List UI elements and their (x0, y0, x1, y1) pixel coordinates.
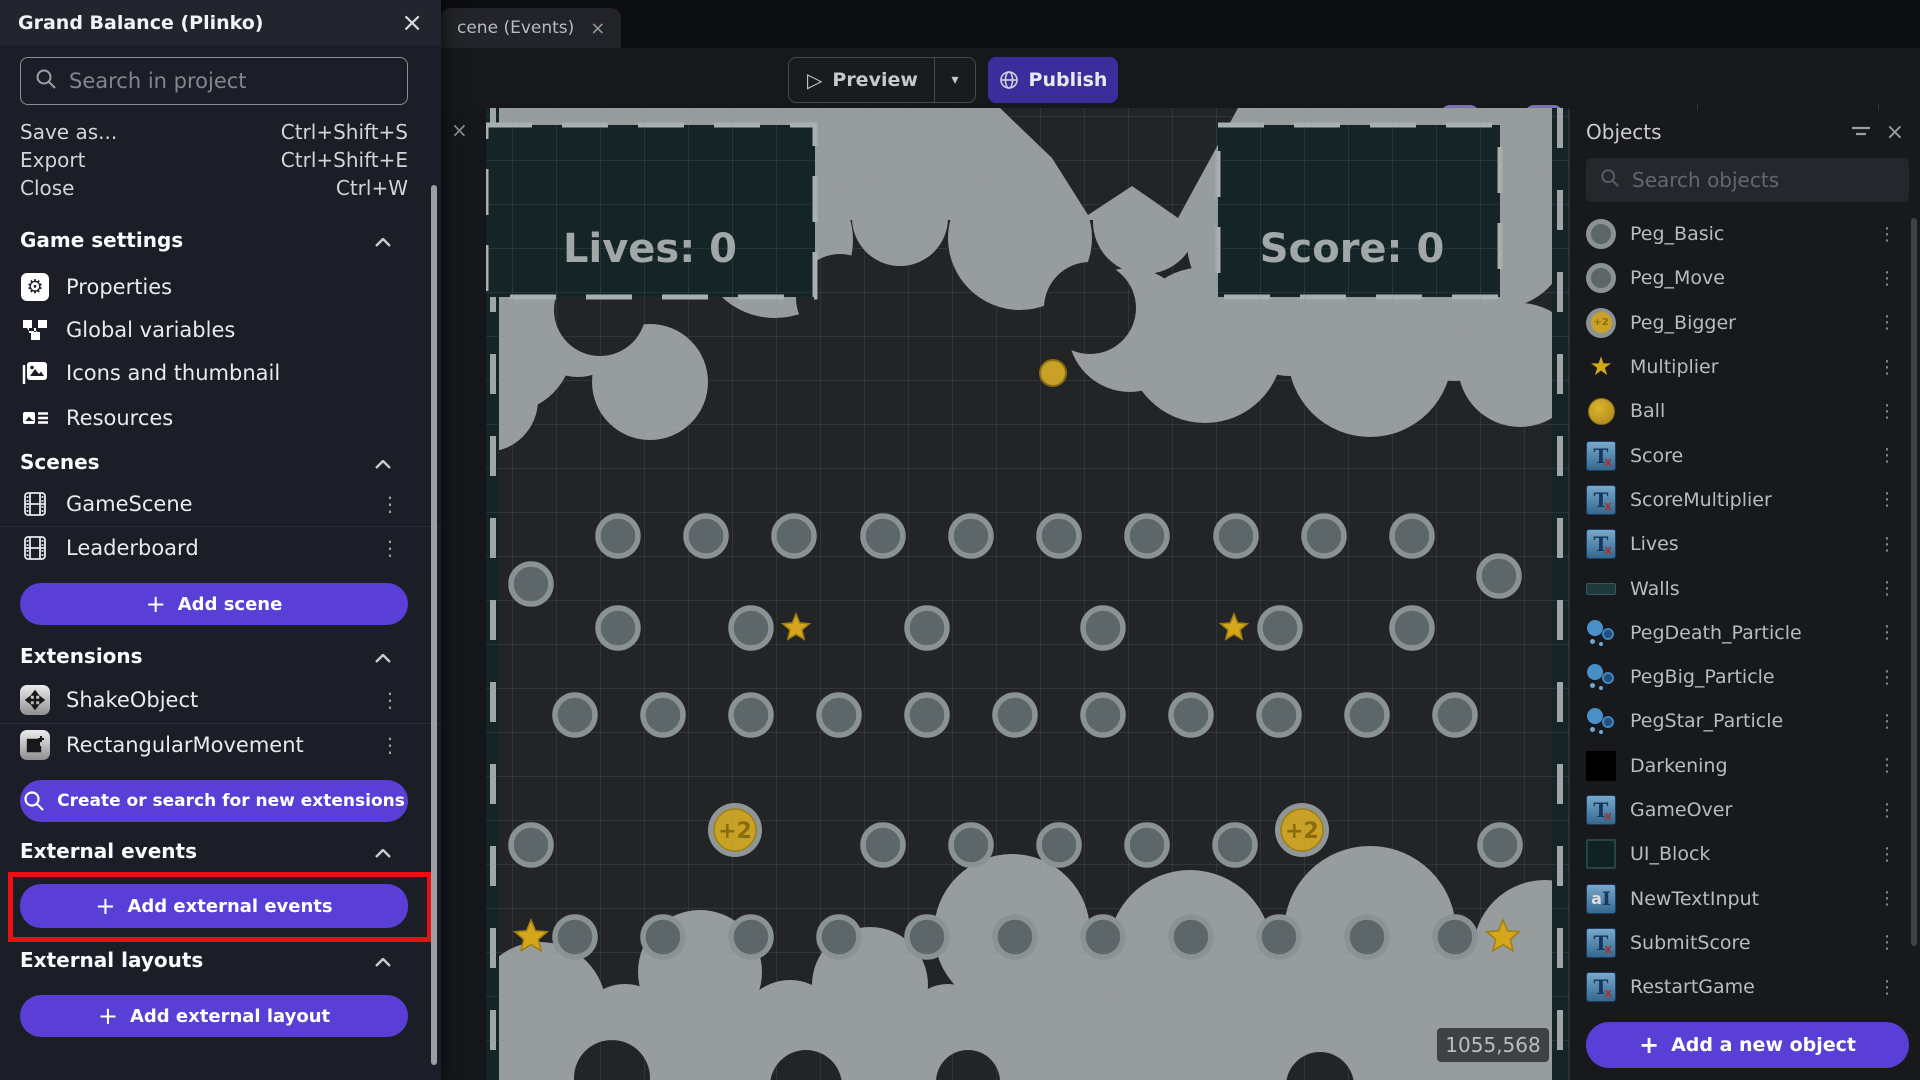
peg[interactable] (1435, 695, 1475, 735)
peg[interactable] (598, 608, 638, 648)
object-name: GameOver (1630, 799, 1864, 821)
text-icon: Tx (1586, 441, 1616, 471)
object-menu-icon[interactable]: ⋮ (1878, 489, 1896, 510)
peg[interactable] (1127, 516, 1167, 556)
coin-icon: +2 (1586, 308, 1616, 338)
object-menu-icon[interactable]: ⋮ (1878, 224, 1896, 245)
cursor-coordinates-badge: 1055,568 (1437, 1028, 1549, 1062)
panel-title: Objects (1586, 120, 1836, 144)
peg[interactable] (1259, 695, 1299, 735)
menu-label: Save as... (20, 120, 117, 144)
menu-shortcut: Ctrl+Shift+E (281, 148, 408, 172)
scrollbar[interactable] (431, 185, 437, 1065)
object-name: UI_Block (1630, 843, 1864, 865)
shake-extension-icon (20, 685, 50, 715)
item-label: GameScene (66, 492, 193, 516)
peg[interactable] (555, 917, 595, 957)
section-title: Extensions (20, 644, 143, 668)
peg[interactable] (951, 825, 991, 865)
object-row[interactable]: Peg_Basic⋮ (1570, 212, 1910, 256)
peg[interactable] (555, 695, 595, 735)
peg-icon (1586, 263, 1616, 293)
search-objects-input[interactable]: Search objects (1586, 158, 1909, 202)
object-menu-icon[interactable]: ⋮ (1878, 445, 1896, 466)
object-row[interactable]: +2Peg_Bigger⋮ (1570, 301, 1910, 345)
object-name: Lives (1630, 533, 1864, 555)
score-text[interactable]: Score: 0 (1260, 226, 1445, 272)
sidebar-item-shakeobject[interactable]: ShakeObject ⋮ (20, 680, 408, 720)
row-menu-icon[interactable]: ⋮ (380, 733, 408, 757)
peg[interactable] (1479, 556, 1519, 596)
object-row[interactable]: PegDeath_Particle⋮ (1570, 611, 1910, 655)
peg[interactable] (1392, 608, 1432, 648)
object-name: SubmitScore (1630, 932, 1864, 954)
object-menu-icon[interactable]: ⋮ (1878, 888, 1896, 909)
peg[interactable] (863, 516, 903, 556)
object-row[interactable]: Walls⋮ (1570, 566, 1910, 610)
object-row[interactable]: UI_Block⋮ (1570, 832, 1910, 876)
peg[interactable] (598, 516, 638, 556)
sidebar-item-resources[interactable]: Resources (20, 398, 408, 438)
add-external-events-button[interactable]: + Add external events (20, 884, 408, 928)
wall-icon (1586, 574, 1616, 604)
object-name: NewTextInput (1630, 888, 1864, 910)
peg[interactable] (1260, 608, 1300, 648)
search-icon (35, 68, 57, 94)
menu-label: Close (20, 176, 74, 200)
object-row[interactable]: Darkening⋮ (1570, 744, 1910, 788)
item-label: Resources (66, 406, 173, 430)
object-row[interactable]: PegStar_Particle⋮ (1570, 699, 1910, 743)
sidebar-item-icons-thumbnail[interactable]: Icons and thumbnail (20, 353, 408, 393)
divider (0, 723, 441, 724)
ball[interactable] (1040, 360, 1066, 386)
button-label: Add external events (127, 896, 332, 917)
peg[interactable] (907, 608, 947, 648)
search-placeholder: Search objects (1632, 168, 1779, 192)
scene-icon (20, 489, 50, 519)
object-row[interactable]: TxScore⋮ (1570, 433, 1910, 477)
particle-icon (1586, 618, 1616, 648)
object-menu-icon[interactable]: ⋮ (1878, 667, 1896, 688)
peg[interactable] (643, 695, 683, 735)
peg[interactable] (863, 825, 903, 865)
object-name: Multiplier (1630, 356, 1864, 378)
search-icon (1600, 168, 1620, 192)
object-name: PegDeath_Particle (1630, 622, 1864, 644)
row-menu-icon[interactable]: ⋮ (380, 536, 408, 560)
add-scene-button[interactable]: + Add scene (20, 583, 408, 625)
menu-item-save-as[interactable]: Save as... Ctrl+Shift+S (20, 118, 408, 146)
object-name: Peg_Move (1630, 267, 1864, 289)
peg[interactable] (907, 695, 947, 735)
chevron-up-icon (375, 839, 391, 863)
publish-label: Publish (1029, 69, 1108, 91)
object-name: ScoreMultiplier (1630, 489, 1864, 511)
coin-label: +2 (718, 819, 752, 844)
peg[interactable] (819, 695, 859, 735)
peg[interactable] (1304, 516, 1344, 556)
sidebar-item-rectangularmovement[interactable]: RectangularMovement ⋮ (20, 725, 408, 765)
peg[interactable] (511, 825, 551, 865)
peg[interactable] (1171, 917, 1211, 957)
project-manager-header: Grand Balance (Plinko) × (0, 0, 441, 45)
menu-item-close[interactable]: Close Ctrl+W (20, 174, 408, 202)
button-label: Create or search for new extensions (57, 791, 405, 811)
play-icon: ▷ (807, 68, 822, 92)
object-row[interactable]: PegBig_Particle⋮ (1570, 655, 1910, 699)
peg[interactable] (1171, 695, 1211, 735)
peg[interactable] (1215, 825, 1255, 865)
object-menu-icon[interactable]: ⋮ (1878, 932, 1896, 953)
object-menu-icon[interactable]: ⋮ (1878, 622, 1896, 643)
close-icon[interactable]: × (1886, 120, 1904, 145)
scene-canvas[interactable]: 25% (486, 108, 1569, 1080)
button-label: Add a new object (1671, 1034, 1856, 1056)
peg[interactable] (819, 917, 859, 957)
black-icon (1586, 751, 1616, 781)
sidebar-item-gamescene[interactable]: GameScene ⋮ (20, 484, 408, 524)
object-name: Peg_Basic (1630, 223, 1864, 245)
object-row[interactable]: Peg_Move⋮ (1570, 256, 1910, 300)
particle-icon (1586, 662, 1616, 692)
peg[interactable] (1039, 516, 1079, 556)
panel-close-icon[interactable]: × (451, 118, 468, 142)
text-icon: Tx (1586, 485, 1616, 515)
close-icon[interactable]: × (401, 10, 423, 36)
add-new-object-button[interactable]: + Add a new object (1586, 1022, 1909, 1068)
peg-icon (1586, 219, 1616, 249)
peg[interactable] (1083, 917, 1123, 957)
chevron-down-icon[interactable]: ▾ (935, 72, 975, 88)
chevron-up-icon (375, 948, 391, 972)
peg[interactable] (1347, 695, 1387, 735)
search-input[interactable]: Search in project (20, 57, 408, 105)
publish-button[interactable]: Publish (988, 57, 1118, 103)
peg-bigger-coin[interactable]: +2 (1275, 803, 1329, 857)
section-external-layouts[interactable]: External layouts (20, 948, 421, 972)
filter-icon[interactable] (1850, 123, 1872, 142)
section-extensions[interactable]: Extensions (20, 644, 421, 668)
peg[interactable] (1259, 917, 1299, 957)
object-name: PegStar_Particle (1630, 710, 1864, 732)
peg[interactable] (995, 695, 1035, 735)
lives-text[interactable]: Lives: 0 (563, 226, 737, 272)
plus-icon: + (146, 590, 166, 618)
add-external-layout-button[interactable]: + Add external layout (20, 995, 408, 1037)
item-label: Leaderboard (66, 536, 199, 560)
scrollbar[interactable] (1911, 218, 1917, 946)
text-icon: Tx (1586, 529, 1616, 559)
section-title: Scenes (20, 450, 100, 474)
input-icon: aI (1586, 884, 1616, 914)
peg[interactable] (1347, 917, 1387, 957)
plus-icon: + (1639, 1031, 1659, 1059)
object-menu-icon[interactable]: ⋮ (1878, 800, 1896, 821)
variables-tree-icon (20, 315, 50, 345)
coin-label: +2 (1285, 819, 1319, 844)
object-name: RestartGame (1630, 976, 1864, 998)
search-icon (23, 790, 45, 812)
item-label: Properties (66, 275, 172, 299)
object-name: Darkening (1630, 755, 1864, 777)
peg[interactable] (774, 516, 814, 556)
sidebar-item-global-variables[interactable]: Global variables (20, 310, 408, 350)
image-icon (20, 358, 50, 388)
peg[interactable] (686, 516, 726, 556)
peg[interactable] (1480, 825, 1520, 865)
section-title: External events (20, 839, 197, 863)
peg[interactable] (731, 608, 771, 648)
object-name: Score (1630, 445, 1864, 467)
gear-icon: ⚙ (20, 272, 50, 302)
peg[interactable] (1083, 695, 1123, 735)
peg[interactable] (1127, 825, 1167, 865)
project-manager-panel: Grand Balance (Plinko) × Search in proje… (0, 0, 441, 1080)
object-name: Peg_Bigger (1630, 312, 1864, 334)
object-menu-icon[interactable]: ⋮ (1878, 534, 1896, 555)
peg[interactable] (951, 516, 991, 556)
menu-shortcut: Ctrl+W (336, 176, 408, 200)
objects-panel-header: Objects × (1570, 110, 1920, 154)
object-row[interactable]: aINewTextInput⋮ (1570, 876, 1910, 920)
scene-icon (20, 533, 50, 563)
collapsed-panel-strip: × (441, 110, 486, 1080)
star-icon: ★ (1586, 352, 1616, 382)
peg[interactable] (511, 564, 551, 604)
object-row[interactable]: TxSubmitScore⋮ (1570, 921, 1910, 965)
plus-icon: + (95, 892, 115, 920)
menu-shortcut: Ctrl+Shift+S (281, 120, 408, 144)
object-row[interactable]: TxGameOver⋮ (1570, 788, 1910, 832)
peg[interactable] (1216, 516, 1256, 556)
resources-icon (20, 403, 50, 433)
section-title: Game settings (20, 228, 183, 252)
object-menu-icon[interactable]: ⋮ (1878, 977, 1896, 998)
peg[interactable] (643, 917, 683, 957)
object-row[interactable]: TxLives⋮ (1570, 522, 1910, 566)
object-row[interactable]: Ball⋮ (1570, 389, 1910, 433)
object-menu-icon[interactable]: ⋮ (1878, 578, 1896, 599)
peg[interactable] (1083, 608, 1123, 648)
button-label: Add scene (178, 594, 283, 615)
ball-icon (1586, 396, 1616, 426)
chevron-up-icon (375, 450, 391, 474)
objects-panel: Objects × Search objects Peg_Basic⋮Peg_M… (1569, 110, 1920, 1080)
peg[interactable] (995, 917, 1035, 957)
peg[interactable] (1392, 516, 1432, 556)
section-title: External layouts (20, 948, 203, 972)
object-name: Walls (1630, 578, 1864, 600)
text-icon: Tx (1586, 795, 1616, 825)
peg-bigger-coin[interactable]: +2 (708, 803, 762, 857)
preview-button[interactable]: ▷ Preview ▾ (788, 57, 976, 103)
item-label: Global variables (66, 318, 235, 342)
object-row[interactable]: TxScoreMultiplier⋮ (1570, 478, 1910, 522)
object-menu-icon[interactable]: ⋮ (1878, 755, 1896, 776)
objects-list: Peg_Basic⋮Peg_Move⋮+2Peg_Bigger⋮★Multipl… (1570, 212, 1910, 1009)
row-menu-icon[interactable]: ⋮ (380, 492, 408, 516)
object-name: PegBig_Particle (1630, 666, 1864, 688)
peg[interactable] (731, 917, 771, 957)
object-row[interactable]: TxRestartGame⋮ (1570, 965, 1910, 1009)
peg[interactable] (1435, 917, 1475, 957)
peg[interactable] (731, 695, 771, 735)
row-menu-icon[interactable]: ⋮ (380, 688, 408, 712)
particle-icon (1586, 706, 1616, 736)
menu-item-export[interactable]: Export Ctrl+Shift+E (20, 146, 408, 174)
object-menu-icon[interactable]: ⋮ (1878, 401, 1896, 422)
object-menu-icon[interactable]: ⋮ (1878, 844, 1896, 865)
rectangular-movement-extension-icon (20, 730, 50, 760)
block-icon (1586, 839, 1616, 869)
project-title: Grand Balance (Plinko) (18, 12, 263, 34)
sidebar-item-properties[interactable]: ⚙ Properties (20, 267, 408, 307)
item-label: Icons and thumbnail (66, 361, 280, 385)
item-label: RectangularMovement (66, 733, 304, 757)
tab-scene-events[interactable]: cene (Events) × (441, 8, 621, 48)
object-row[interactable]: ★Multiplier⋮ (1570, 345, 1910, 389)
chevron-up-icon (375, 228, 391, 252)
search-placeholder: Search in project (69, 69, 247, 93)
object-menu-icon[interactable]: ⋮ (1878, 711, 1896, 732)
tab-label: cene (Events) (457, 18, 574, 38)
text-icon: Tx (1586, 972, 1616, 1002)
section-external-events[interactable]: External events (20, 839, 421, 863)
section-scenes[interactable]: Scenes (20, 450, 421, 474)
preview-label: Preview (832, 69, 934, 91)
object-menu-icon[interactable]: ⋮ (1878, 357, 1896, 378)
globe-icon (999, 70, 1019, 90)
menu-label: Export (20, 148, 85, 172)
item-label: ShakeObject (66, 688, 198, 712)
section-game-settings[interactable]: Game settings (20, 228, 421, 252)
object-menu-icon[interactable]: ⋮ (1878, 312, 1896, 333)
chevron-up-icon (375, 644, 391, 668)
peg[interactable] (907, 917, 947, 957)
scene-artwork: 25% (486, 108, 1569, 1080)
object-menu-icon[interactable]: ⋮ (1878, 268, 1896, 289)
text-icon: Tx (1586, 928, 1616, 958)
peg[interactable] (1039, 825, 1079, 865)
plus-icon: + (98, 1002, 118, 1030)
tab-close-icon[interactable]: × (590, 18, 605, 39)
sidebar-item-leaderboard[interactable]: Leaderboard ⋮ (20, 528, 408, 568)
object-name: Ball (1630, 400, 1864, 422)
create-search-extensions-button[interactable]: Create or search for new extensions (20, 780, 408, 822)
divider (0, 526, 441, 527)
button-label: Add external layout (130, 1006, 330, 1027)
